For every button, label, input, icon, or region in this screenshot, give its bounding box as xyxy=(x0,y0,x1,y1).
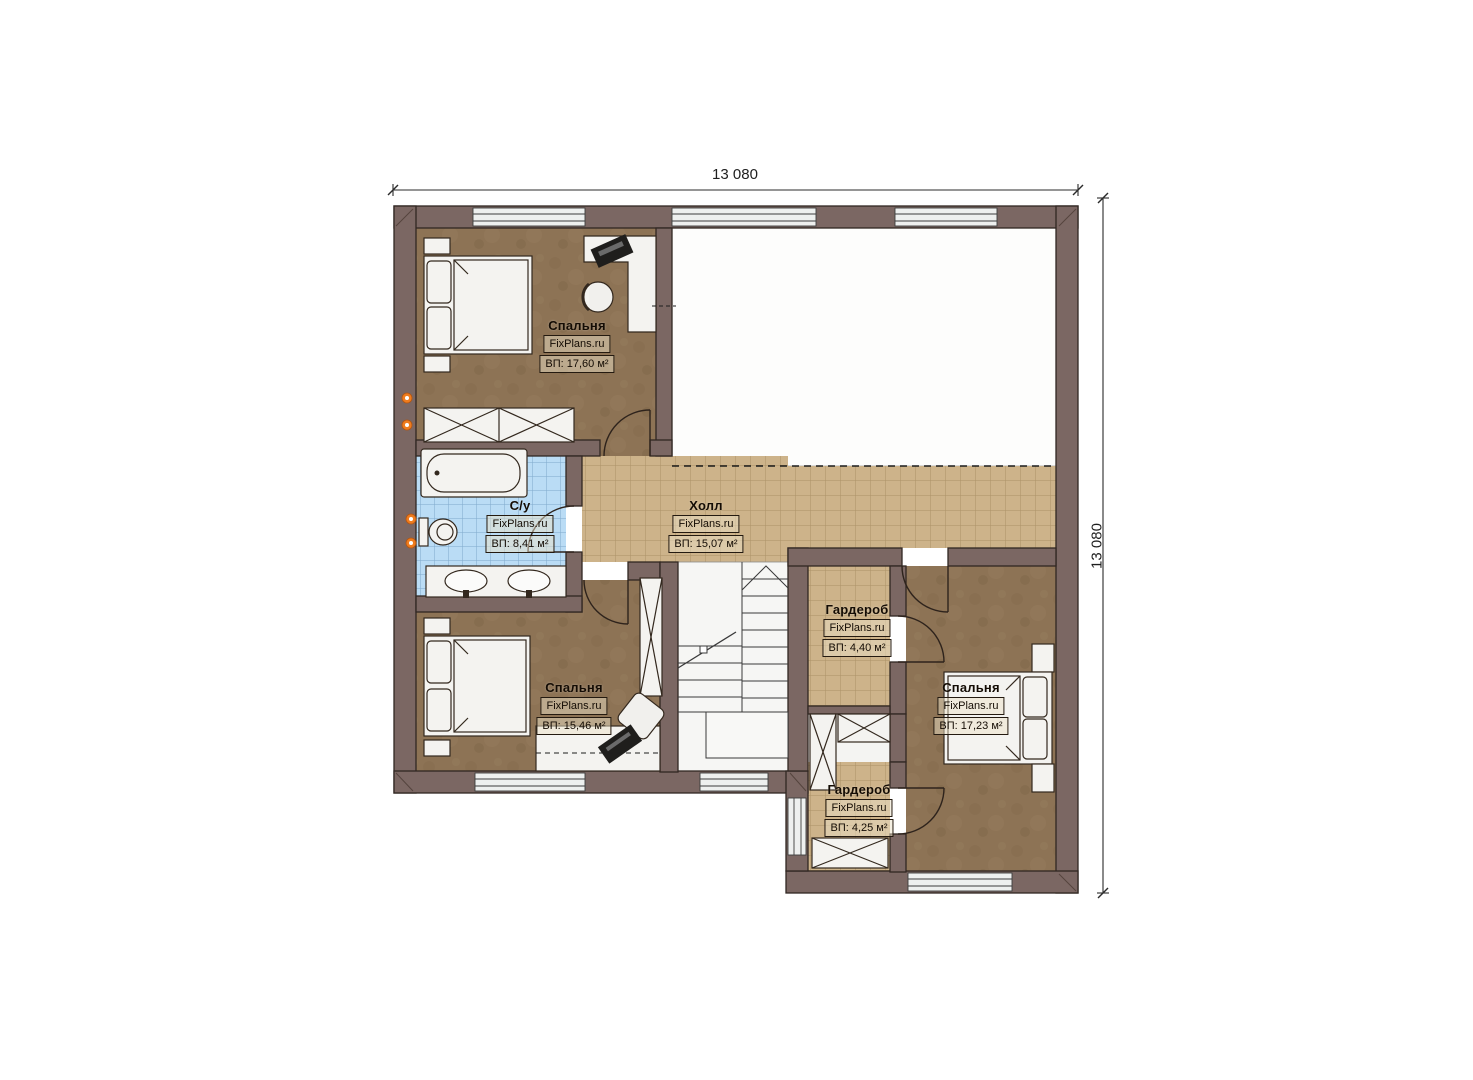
nightstand-icon xyxy=(1032,644,1054,672)
room-name: Спальня xyxy=(539,318,614,333)
nightstand-icon xyxy=(424,238,450,254)
window-icon xyxy=(895,208,997,226)
wardrobe-cabinet-icon xyxy=(640,578,662,696)
toilet-icon xyxy=(419,518,457,546)
brand-label: FixPlans.ru xyxy=(672,515,739,533)
bed-icon xyxy=(424,636,530,736)
room-name: Спальня xyxy=(933,680,1008,695)
floor-plan-canvas: Спальня FixPlans.ru ВП: 17,60 м² С/у Fix… xyxy=(0,0,1473,1080)
room-name: С/у xyxy=(485,498,554,513)
riser-dot-icon xyxy=(402,420,412,430)
brand-label: FixPlans.ru xyxy=(540,697,607,715)
room-label-hall: Холл FixPlans.ru ВП: 15,07 м² xyxy=(668,498,743,553)
dimension-right-value: 13 080 xyxy=(1089,523,1106,569)
room-label-wardrobe-1: Гардероб FixPlans.ru ВП: 4,40 м² xyxy=(822,602,891,657)
bathtub-icon xyxy=(421,449,527,497)
nightstand-icon xyxy=(424,740,450,756)
wardrobe-cabinet-icon xyxy=(838,714,890,742)
area-label: ВП: 4,40 м² xyxy=(822,639,891,657)
room-name: Гардероб xyxy=(822,602,891,617)
room-name: Спальня xyxy=(536,680,611,695)
window-icon xyxy=(908,873,1012,891)
room-label-bedroom-3: Спальня FixPlans.ru ВП: 17,23 м² xyxy=(933,680,1008,735)
brand-label: FixPlans.ru xyxy=(825,799,892,817)
office-chair-icon xyxy=(583,282,613,312)
room-label-wardrobe-2: Гардероб FixPlans.ru ВП: 4,25 м² xyxy=(824,782,893,837)
area-label: ВП: 17,23 м² xyxy=(933,717,1008,735)
window-icon xyxy=(700,773,768,791)
area-label: ВП: 17,60 м² xyxy=(539,355,614,373)
wardrobe-cabinet-icon xyxy=(424,408,574,442)
room-label-bedroom-2: Спальня FixPlans.ru ВП: 15,46 м² xyxy=(536,680,611,735)
brand-label: FixPlans.ru xyxy=(937,697,1004,715)
brand-label: FixPlans.ru xyxy=(823,619,890,637)
bed-icon xyxy=(424,256,532,354)
area-label: ВП: 15,07 м² xyxy=(668,535,743,553)
room-label-bedroom-1: Спальня FixPlans.ru ВП: 17,60 м² xyxy=(539,318,614,373)
nightstand-icon xyxy=(1032,764,1054,792)
room-label-bathroom: С/у FixPlans.ru ВП: 8,41 м² xyxy=(485,498,554,553)
brand-label: FixPlans.ru xyxy=(486,515,553,533)
riser-dot-icon xyxy=(406,538,416,548)
nightstand-icon xyxy=(424,356,450,372)
window-icon xyxy=(475,773,585,791)
dimension-top-value: 13 080 xyxy=(712,166,758,183)
room-name: Гардероб xyxy=(824,782,893,797)
window-icon xyxy=(672,208,816,226)
nightstand-icon xyxy=(424,618,450,634)
floor-hall-b xyxy=(788,466,1056,548)
wardrobe-cabinet-icon xyxy=(810,714,836,790)
vanity-sink-icon xyxy=(426,566,566,598)
window-icon xyxy=(473,208,585,226)
riser-dot-icon xyxy=(402,393,412,403)
window-icon xyxy=(788,798,806,855)
floor-void-space xyxy=(672,228,1056,466)
area-label: ВП: 4,25 м² xyxy=(824,819,893,837)
area-label: ВП: 8,41 м² xyxy=(485,535,554,553)
brand-label: FixPlans.ru xyxy=(543,335,610,353)
room-name: Холл xyxy=(668,498,743,513)
area-label: ВП: 15,46 м² xyxy=(536,717,611,735)
wardrobe-cabinet-icon xyxy=(812,838,888,868)
riser-dot-icon xyxy=(406,514,416,524)
